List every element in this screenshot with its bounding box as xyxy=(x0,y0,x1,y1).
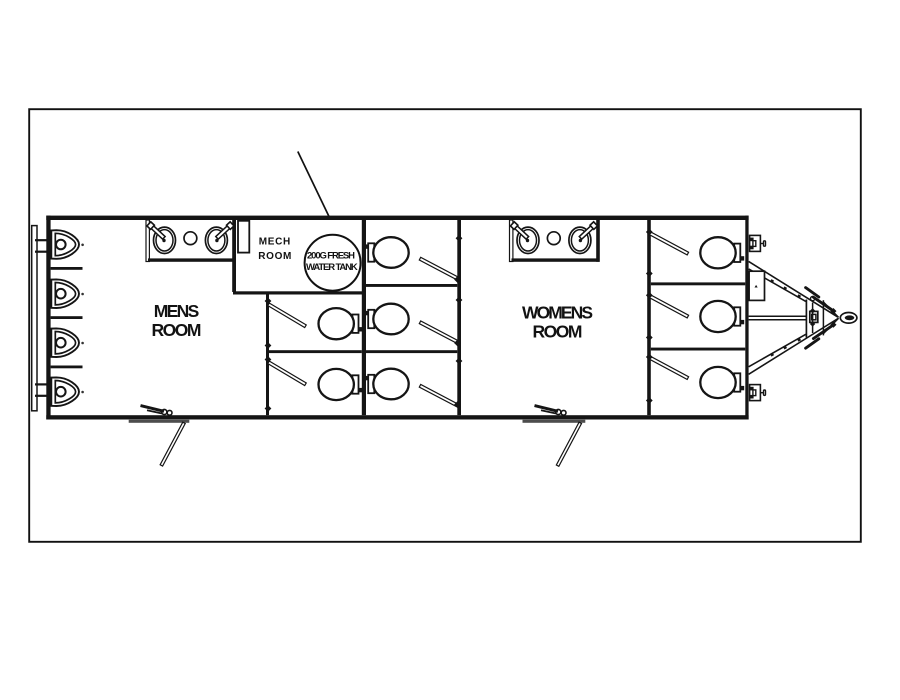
svg-text:ROOM: ROOM xyxy=(533,321,583,341)
svg-text:200G FRESH: 200G FRESH xyxy=(307,251,355,262)
svg-text:WOMENS: WOMENS xyxy=(522,303,593,323)
svg-text:ROOM: ROOM xyxy=(258,251,291,262)
svg-text:MECH: MECH xyxy=(259,236,291,247)
svg-text:ROOM: ROOM xyxy=(152,320,202,340)
svg-text:MENS: MENS xyxy=(154,301,200,321)
svg-text:WATER TANK: WATER TANK xyxy=(306,262,358,273)
